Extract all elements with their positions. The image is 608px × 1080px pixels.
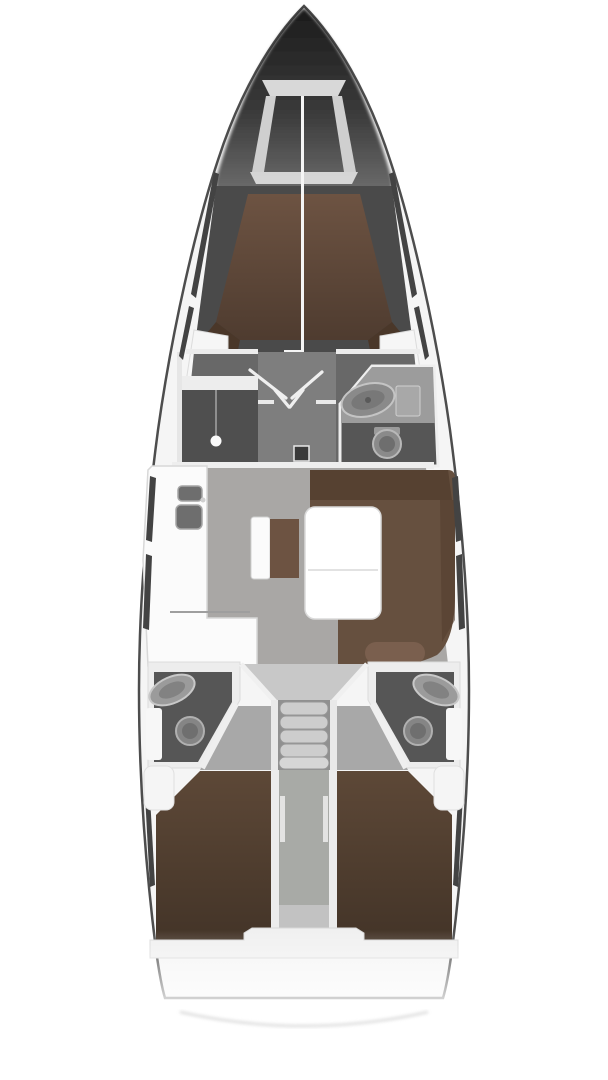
bulkhead-wall-right: [336, 349, 420, 354]
walkway-trim-left: [280, 796, 285, 842]
galley-sink-basin-1: [178, 486, 202, 501]
bulkhead-wall-left: [186, 349, 258, 354]
stern-fade: [80, 930, 528, 1080]
companionway-step: [280, 716, 328, 729]
wardrobe-shelf: [181, 376, 258, 390]
wardrobe: [180, 390, 258, 466]
companionway-step: [280, 702, 328, 715]
port-aft-head-toilet-bowl: [182, 723, 198, 739]
salon-table: [305, 507, 381, 619]
starboard-aft-head-seat: [446, 708, 462, 760]
salon-forward-wall: [172, 462, 434, 469]
salon-bench-seat: [251, 517, 270, 579]
yacht-floorplan-page: [0, 0, 608, 1080]
hanging-lamp-icon: [211, 436, 222, 447]
walkway-wall-left: [271, 770, 279, 948]
dinette-cushion: [365, 642, 425, 664]
companionway-hatch-mark: [294, 446, 309, 461]
forward-head-toilet-bowl: [379, 436, 395, 452]
stairwell-wall-right: [330, 700, 337, 772]
galley-sink-basin-2: [176, 505, 202, 529]
starboard-aft-locker: [434, 766, 464, 810]
walkway-wall-right: [329, 770, 337, 948]
corridor-wall-bottom-2: [316, 400, 336, 404]
companionway-step: [279, 757, 329, 769]
companionway-step: [280, 730, 328, 743]
dinette-sofa-backrest: [310, 470, 452, 500]
yacht-floorplan: [0, 0, 608, 1080]
walkway-trim-right: [323, 796, 328, 842]
port-aft-head-seat: [146, 708, 162, 760]
wardrobe-side-wall: [177, 352, 182, 466]
port-aft-locker: [144, 766, 174, 810]
starboard-aft-head-toilet-bowl: [410, 723, 426, 739]
galley-faucet: [201, 498, 206, 503]
companionway-steps: [279, 702, 329, 769]
salon-bench-cushion: [270, 519, 299, 578]
anchor-locker-top-bar: [262, 80, 346, 96]
companionway-step: [280, 744, 328, 757]
mast-post-line: [301, 96, 304, 352]
dinette-sofa-side-backrest: [440, 500, 455, 642]
forward-head-cabinet: [396, 386, 420, 416]
stairwell-wall-left: [271, 700, 278, 772]
